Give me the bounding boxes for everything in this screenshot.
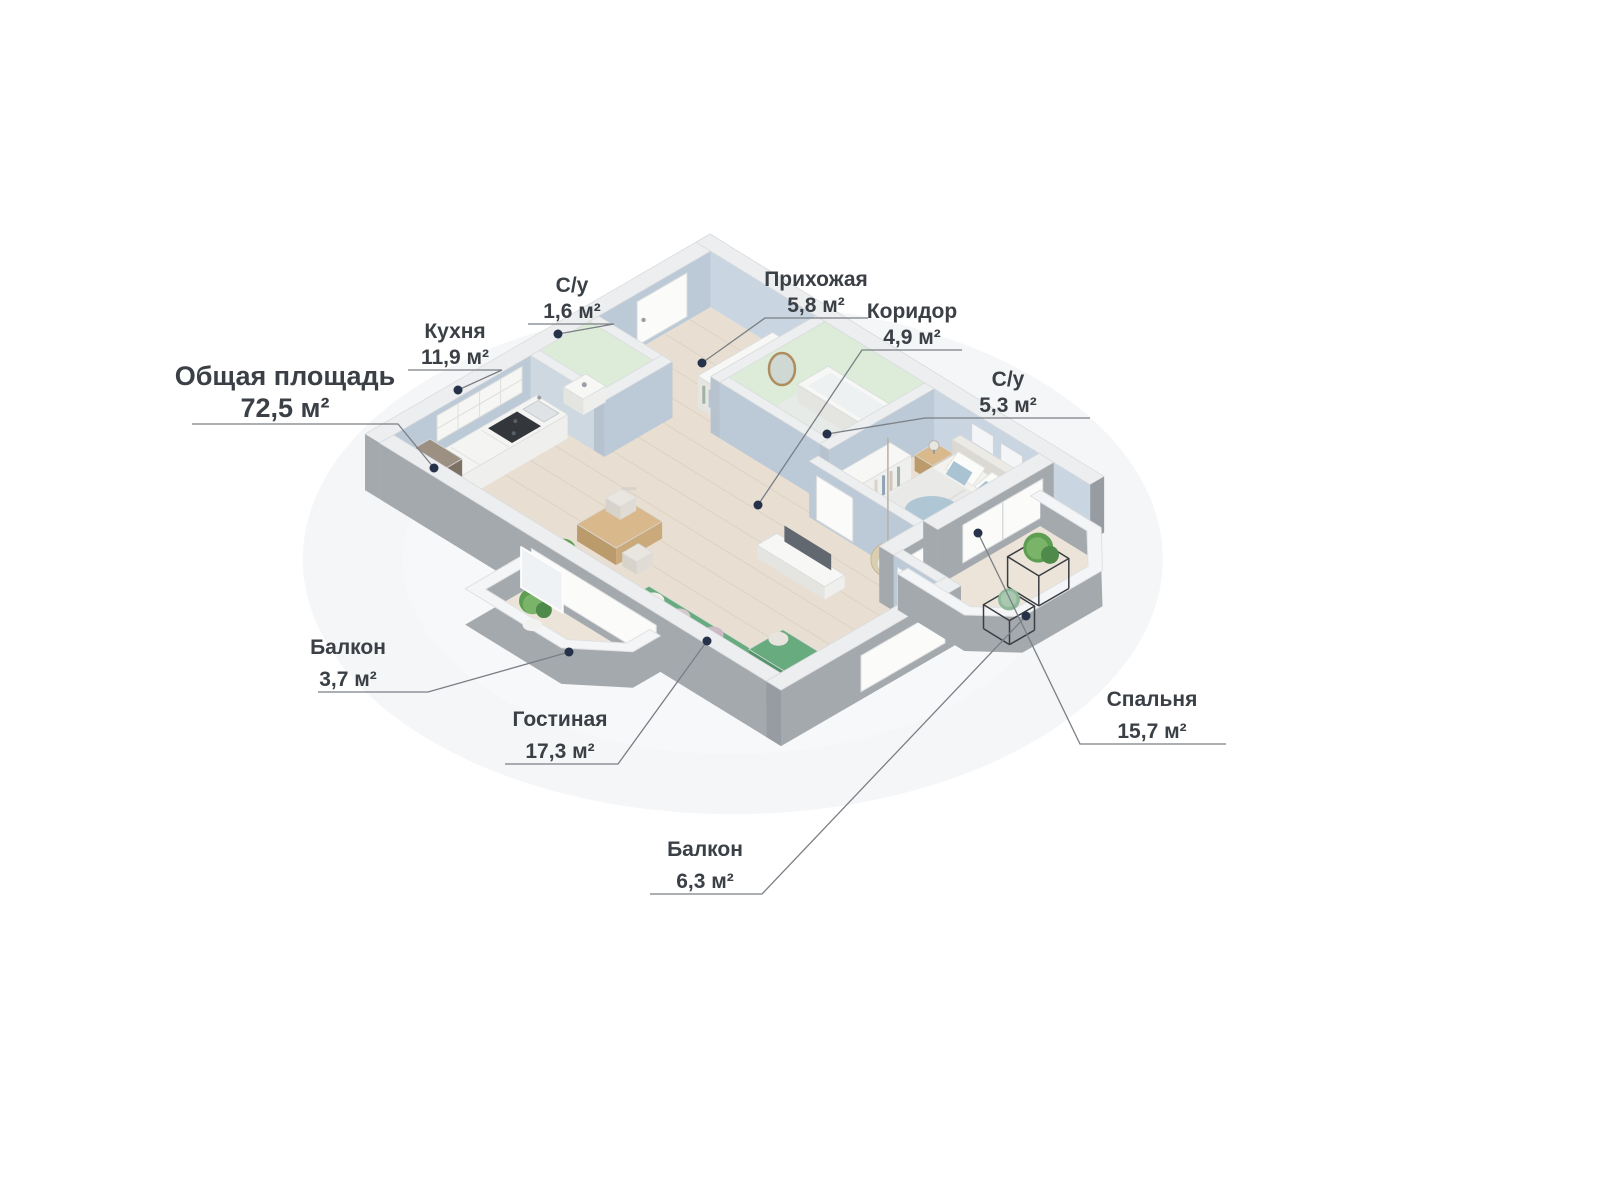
svg-text:Кухня: Кухня [424, 320, 485, 343]
floor-plan-canvas: Общая площадь 72,5 м² Кухня 11,9 м² С/у … [0, 0, 1600, 1200]
anchor-dot [565, 648, 574, 657]
svg-text:1,6 м²: 1,6 м² [543, 300, 601, 323]
svg-text:5,8 м²: 5,8 м² [787, 294, 845, 317]
anchor-dot [430, 464, 439, 473]
svg-text:С/у: С/у [556, 274, 589, 297]
svg-text:3,7 м²: 3,7 м² [319, 668, 377, 691]
svg-text:Прихожая: Прихожая [764, 268, 868, 291]
svg-text:5,3 м²: 5,3 м² [979, 394, 1037, 417]
anchor-dot [554, 330, 563, 339]
anchor-dot [703, 637, 712, 646]
svg-text:Коридор: Коридор [867, 300, 957, 323]
svg-text:4,9 м²: 4,9 м² [883, 326, 941, 349]
floor-plan-page: Общая площадь 72,5 м² Кухня 11,9 м² С/у … [0, 0, 1600, 1200]
svg-text:Балкон: Балкон [310, 636, 386, 659]
svg-text:С/у: С/у [992, 368, 1025, 391]
svg-text:6,3 м²: 6,3 м² [676, 870, 734, 893]
anchor-dot [698, 359, 707, 368]
anchor-dot [1022, 612, 1031, 621]
svg-text:15,7 м²: 15,7 м² [1117, 720, 1186, 743]
total-area-value: 72,5 м² [240, 393, 329, 423]
anchor-dot [754, 501, 763, 510]
anchor-dot [974, 529, 983, 538]
total-area-name: Общая площадь [175, 361, 396, 391]
anchor-dot [823, 430, 832, 439]
svg-text:Балкон: Балкон [667, 838, 743, 861]
svg-text:Спальня: Спальня [1107, 688, 1198, 711]
svg-text:11,9 м²: 11,9 м² [421, 346, 489, 369]
svg-text:Гостиная: Гостиная [513, 708, 608, 731]
anchor-dot [454, 386, 463, 395]
svg-text:17,3 м²: 17,3 м² [525, 740, 594, 763]
